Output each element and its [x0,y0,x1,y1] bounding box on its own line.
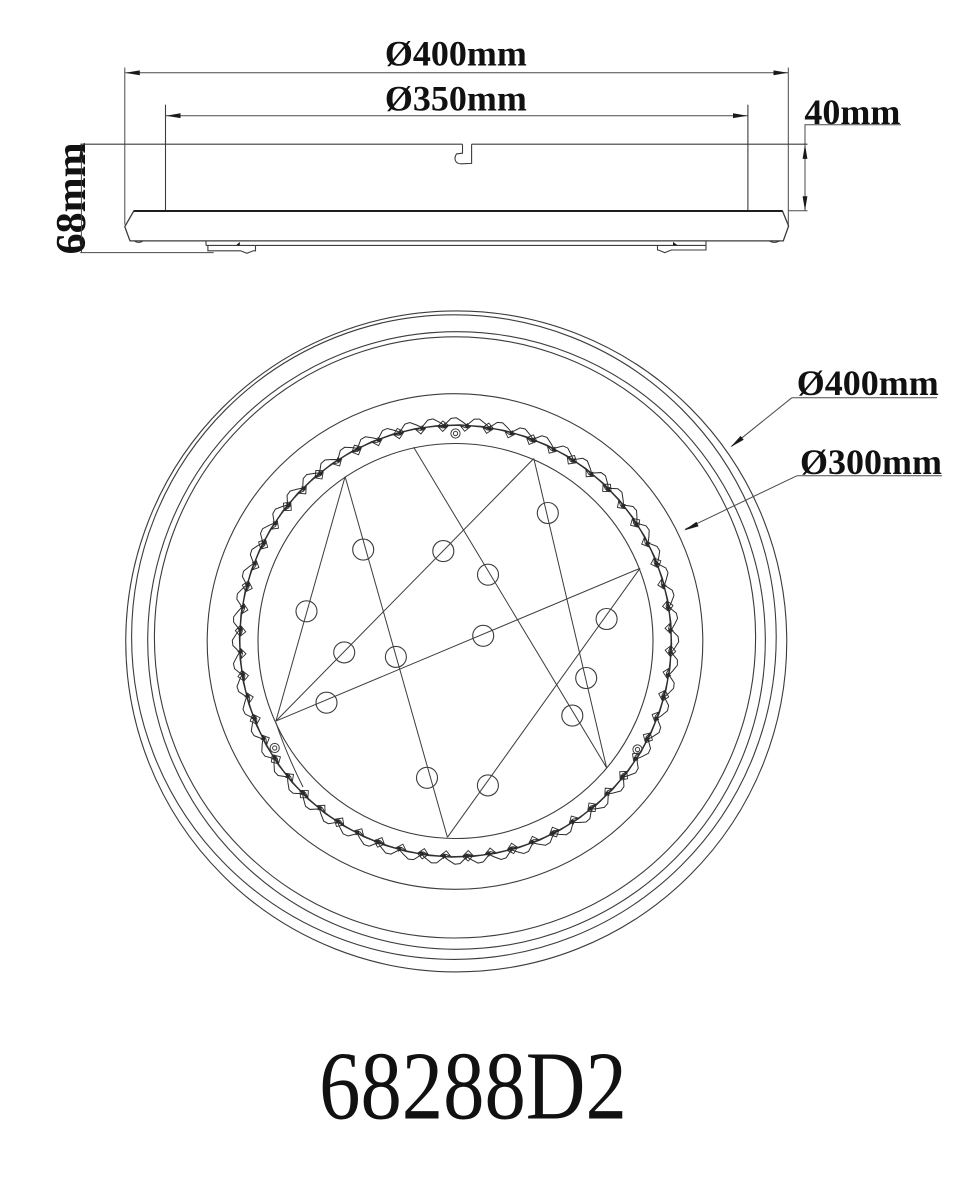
svg-text:40mm: 40mm [804,92,900,132]
svg-text:Ø400mm: Ø400mm [385,34,527,74]
svg-text:68288D2: 68288D2 [319,1031,627,1140]
svg-text:Ø350mm: Ø350mm [385,78,527,118]
svg-text:68mm: 68mm [49,142,95,254]
